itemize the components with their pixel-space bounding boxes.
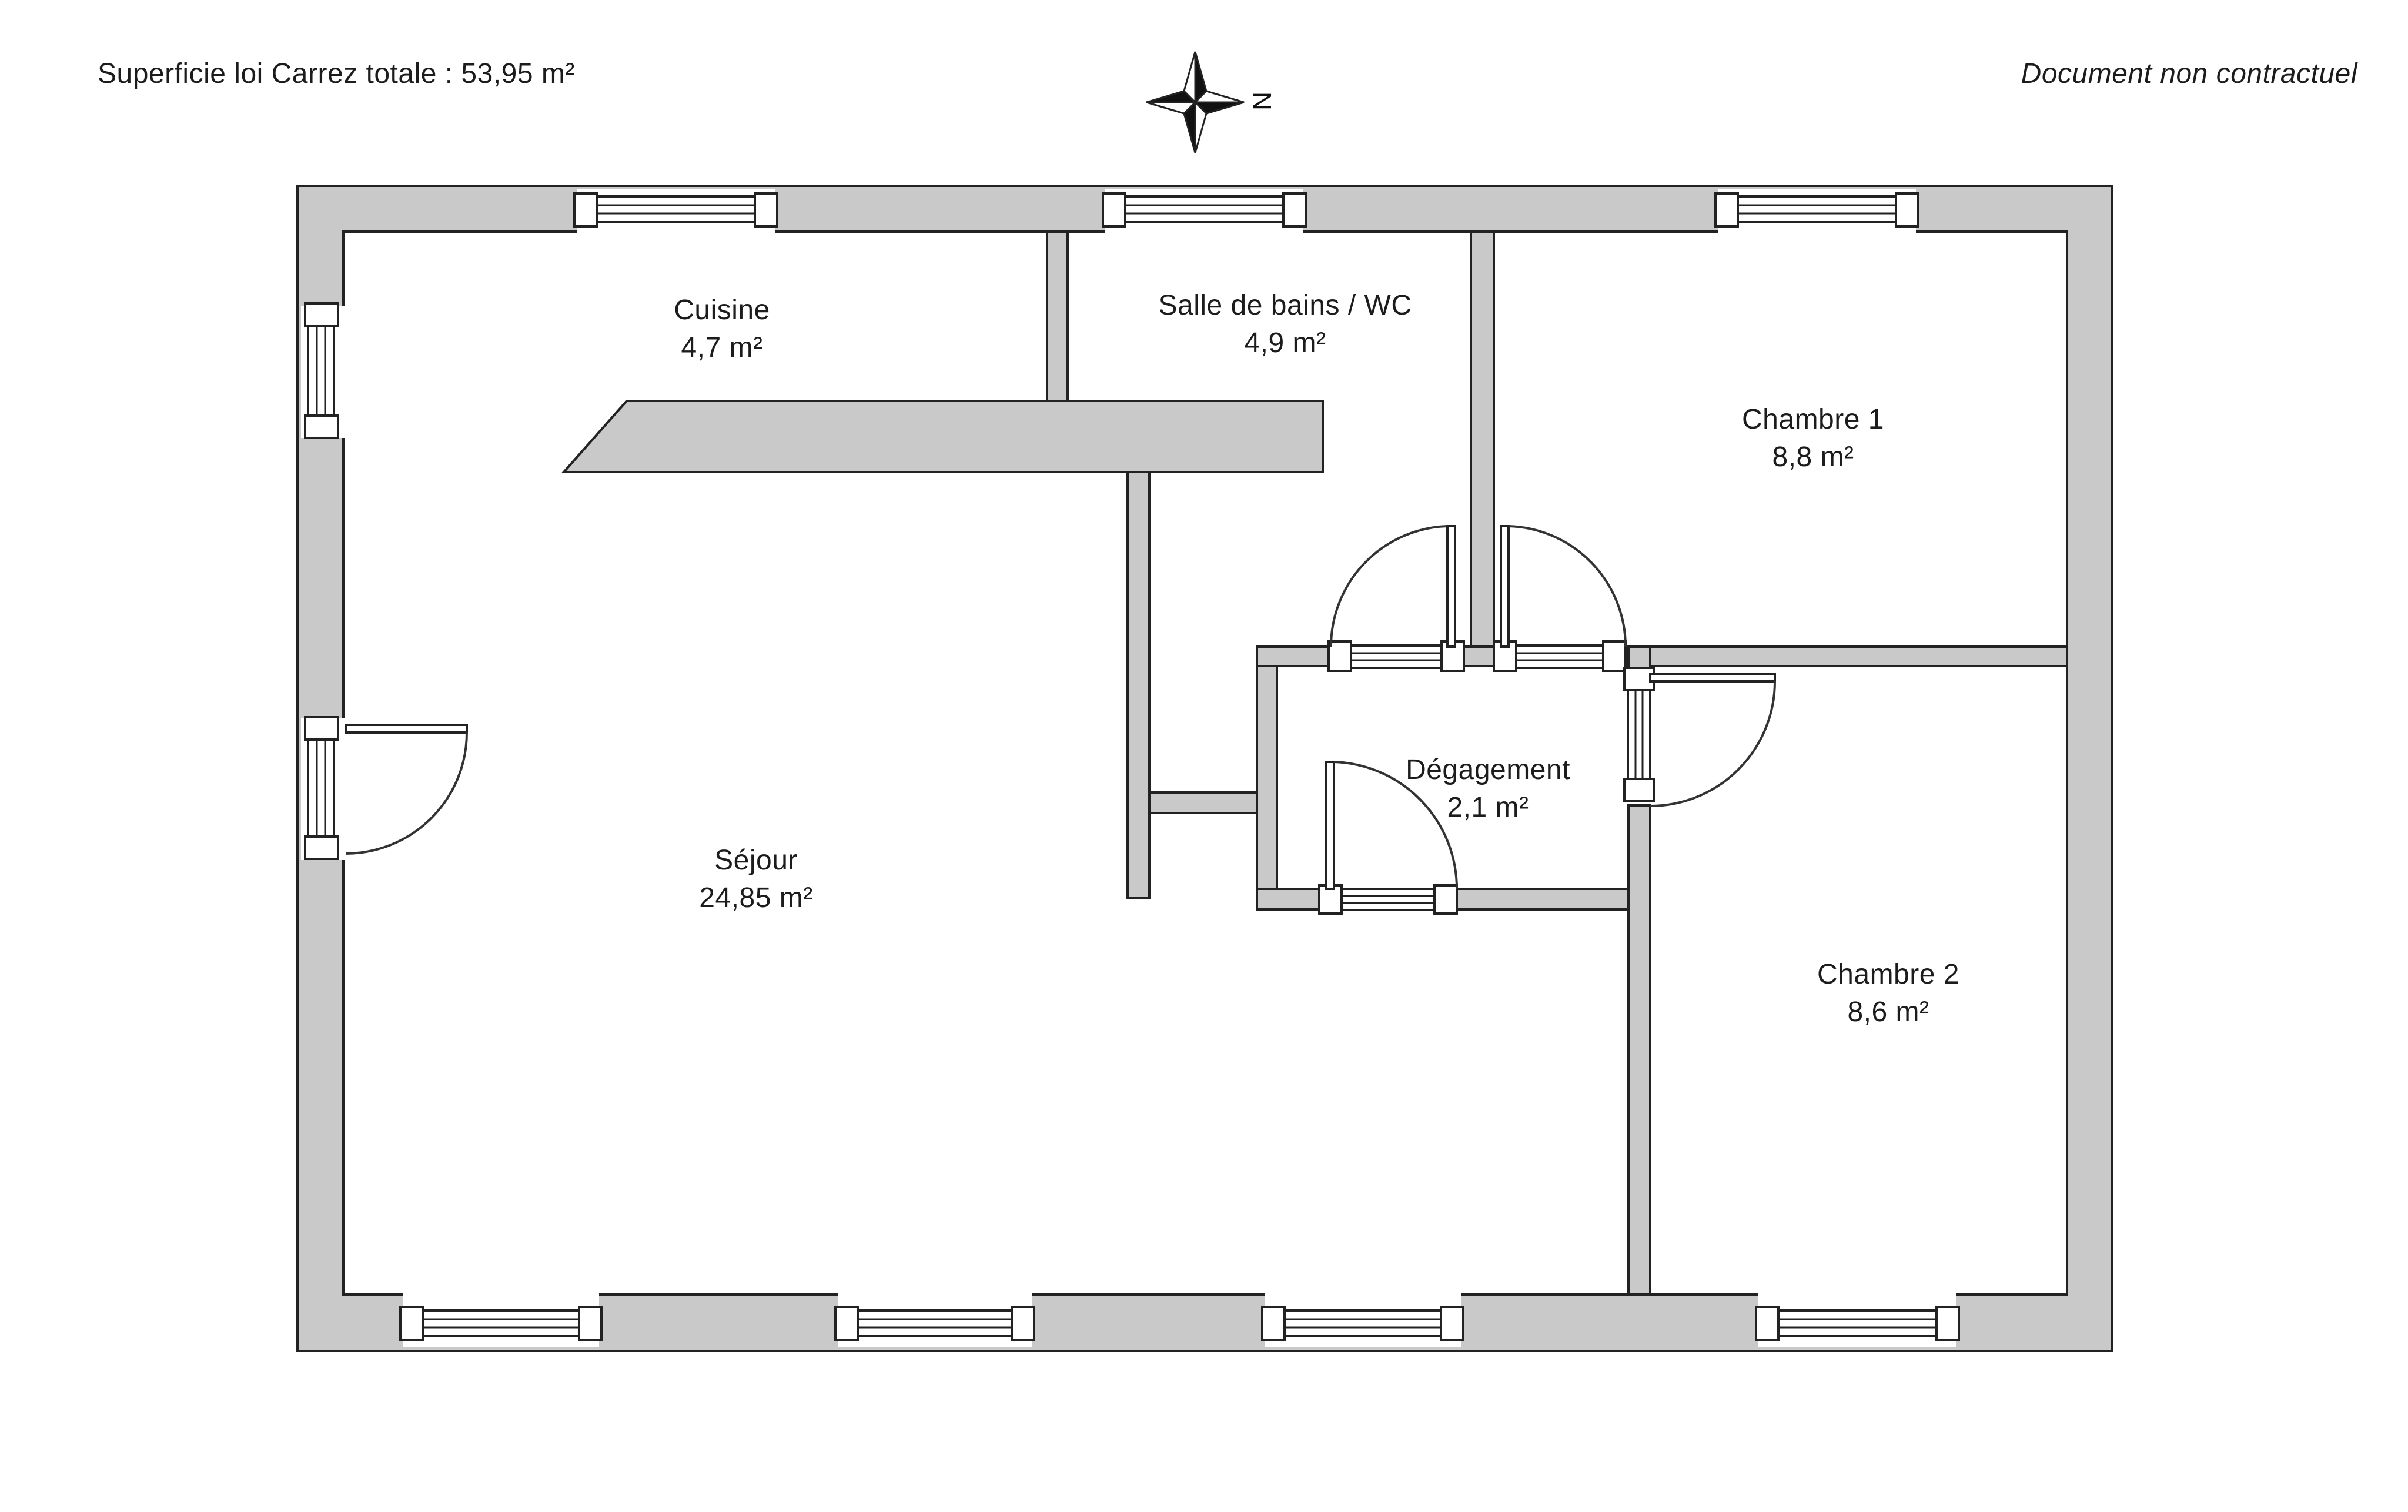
window [1103,193,1306,226]
wall-hall-top-right [1626,647,2067,666]
room-label-cuisine: Cuisine 4,7 m² [575,292,869,367]
wall-sejour-a [1128,472,1149,898]
room-name: Chambre 1 [1666,401,1960,439]
room-area: 8,6 m² [1741,993,2035,1031]
floor-plan: N [0,0,2408,1512]
room-area: 4,9 m² [1079,325,1491,362]
window [1756,1307,1959,1340]
room-name: Séjour [609,842,903,879]
north-label: N [1248,92,1276,111]
window [1262,1307,1463,1340]
room-label-sejour: Séjour 24,85 m² [609,842,903,917]
wall-degagement-bottom-left [1257,889,1322,909]
kitchen-counter-wall [564,401,1323,472]
wall-hall-top-mid [1464,647,1496,666]
door-chambre1 [1494,526,1626,671]
window [574,193,777,226]
wall-cuisine-sdb [1047,232,1068,401]
room-label-salle-de-bains: Salle de bains / WC 4,9 m² [1079,287,1491,362]
room-name: Dégagement [1341,751,1635,789]
room-label-degagement: Dégagement 2,1 m² [1341,751,1635,827]
room-label-chambre2: Chambre 2 8,6 m² [1741,956,2035,1031]
window [305,303,338,438]
compass-rose: N [1146,52,1276,153]
window [835,1307,1034,1340]
wall-degagement-bottom-right [1457,889,1650,909]
window [400,1307,601,1340]
wall-hall-top-left [1257,647,1331,666]
door-sdb [1329,526,1464,671]
wall-degagement-left [1257,666,1277,909]
door-chambre2 [1624,668,1775,806]
wall-chambre2-left-bottom [1628,805,1650,1294]
room-area: 8,8 m² [1666,439,1960,476]
room-name: Salle de bains / WC [1079,287,1491,325]
wall-stub [1149,792,1257,813]
window [1715,193,1918,226]
room-area: 2,1 m² [1341,789,1635,827]
room-name: Chambre 2 [1741,956,2035,993]
room-label-chambre1: Chambre 1 8,8 m² [1666,401,1960,476]
entry-door [305,717,467,859]
room-name: Cuisine [575,292,869,329]
room-area: 4,7 m² [575,329,869,367]
room-area: 24,85 m² [609,879,903,917]
